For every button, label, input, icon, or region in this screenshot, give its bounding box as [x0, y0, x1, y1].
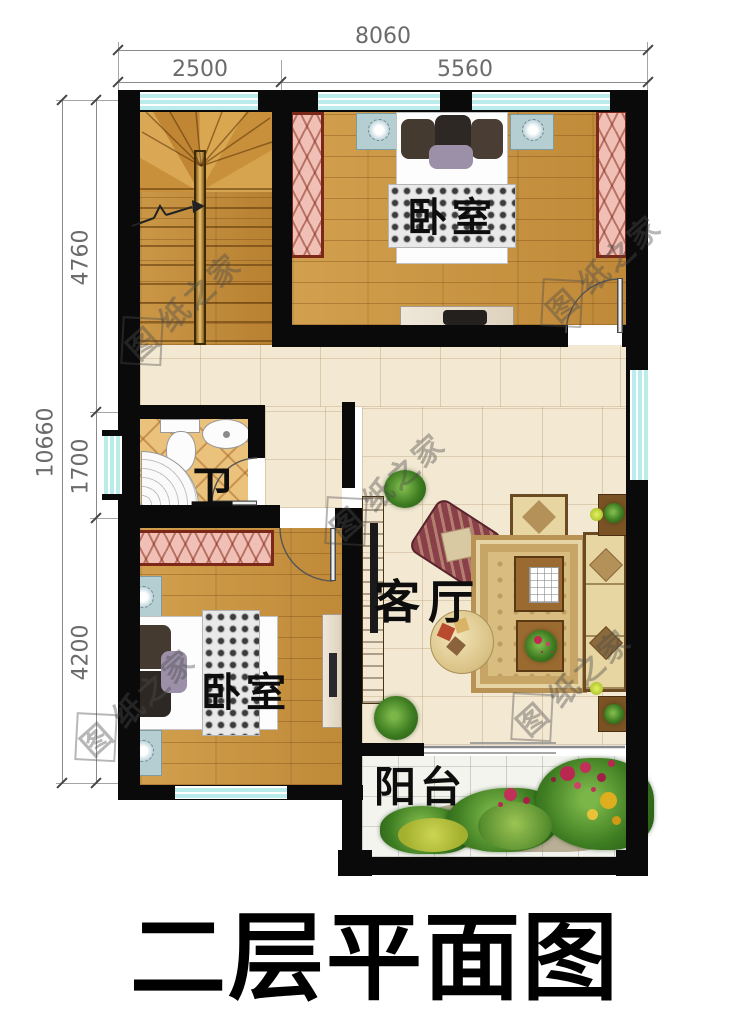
dimension-line — [96, 100, 97, 783]
wall-bathroom-east — [248, 405, 265, 458]
pillow — [429, 145, 473, 169]
window-frame-cap — [102, 494, 122, 500]
dimension-label-seg-4200: 4200 — [69, 608, 94, 698]
wardrobe — [290, 112, 324, 258]
window-bathroom — [102, 436, 122, 494]
window-living-room — [630, 370, 648, 480]
dressing-table — [322, 614, 342, 728]
room-label-bedroom-bottom: 卧室 — [201, 660, 291, 718]
sink — [202, 419, 250, 449]
flower-berries — [504, 788, 517, 801]
sofa-pillow — [522, 500, 556, 534]
sofa-pillow — [589, 548, 623, 582]
mirror — [329, 653, 337, 697]
pillow — [471, 119, 503, 159]
wall-stub-living — [342, 402, 355, 488]
tv — [443, 310, 487, 325]
side-table — [598, 696, 628, 732]
dimension-label-seg-5560: 5560 — [415, 57, 515, 82]
wall-stair-divider — [272, 90, 292, 347]
stair-winder-treads — [140, 112, 272, 192]
window-bedroom-top-2 — [472, 92, 610, 110]
flower-yellow-bloom — [600, 792, 617, 809]
wall-bedroom-top-south-b — [622, 325, 648, 347]
page-title: 二层平面图 — [0, 880, 750, 1019]
window-bedroom-top-1 — [318, 92, 440, 110]
flower-blooms — [534, 636, 542, 644]
room-label-bathroom: 卫 — [190, 452, 234, 516]
hallway-floor — [140, 345, 626, 407]
dimension-line — [118, 82, 648, 83]
room-label-living-room: 客厅 — [374, 566, 482, 632]
room-label-balcony: 阳台 — [374, 754, 466, 815]
extension-line — [56, 100, 118, 101]
wall-bedroom-top-south-a — [272, 325, 568, 347]
dimension-label-seg-1700: 1700 — [69, 422, 94, 512]
floor-lamp — [590, 508, 603, 521]
table-tray — [529, 567, 559, 603]
window-bedroom-bottom — [175, 786, 287, 799]
sink-drain — [223, 431, 230, 438]
hallway-corridor-floor — [265, 407, 342, 508]
room-label-bedroom-top: 卧室 — [407, 185, 497, 243]
wall-bedroom-bottom-east — [342, 508, 362, 875]
extension-line — [281, 60, 282, 90]
flower-arrangement — [525, 630, 557, 662]
wall-post — [616, 850, 648, 876]
window-staircase — [140, 92, 258, 110]
dimension-line — [118, 50, 648, 51]
potted-plant — [374, 696, 418, 740]
balcony-plant-yellow — [398, 818, 468, 852]
floor-plan-page: 8060 2500 5560 10660 4760 1700 4200 — [0, 0, 750, 1021]
balcony-plant-light — [478, 802, 552, 850]
dimension-label-overall-height: 10660 — [34, 398, 59, 488]
table-lamp — [522, 119, 544, 141]
table-lamp — [368, 119, 390, 141]
dimension-line — [62, 100, 63, 783]
wall-balcony-south — [342, 857, 648, 875]
dimension-label-seg-2500: 2500 — [150, 57, 250, 82]
coffee-table — [514, 556, 564, 612]
wardrobe — [128, 530, 274, 566]
wall-post — [338, 850, 372, 876]
potted-plant — [604, 503, 624, 523]
wall-bathroom-north — [118, 405, 265, 419]
flower-berries — [560, 766, 575, 781]
dimension-label-overall-width: 8060 — [318, 24, 448, 49]
dimension-label-seg-4760: 4760 — [69, 213, 94, 303]
potted-plant — [604, 704, 624, 724]
